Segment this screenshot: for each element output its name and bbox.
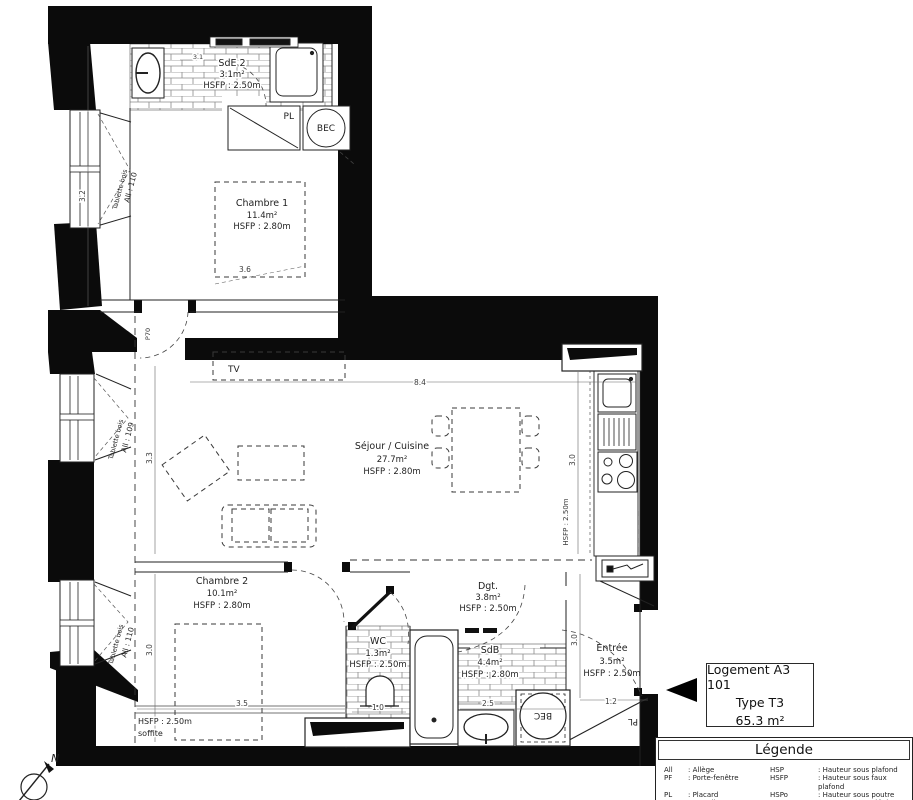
svg-text:1.3m²: 1.3m² xyxy=(365,649,390,659)
dim-wc-width: 1.0 xyxy=(372,703,384,712)
dim-chambre2-height: 3.0 xyxy=(145,644,154,656)
tv-label: TV xyxy=(227,365,240,375)
legend-title: Légende xyxy=(658,740,910,760)
svg-text:Séjour / Cuisine: Séjour / Cuisine xyxy=(355,441,429,452)
legend-abbr: HSP xyxy=(770,766,818,774)
svg-text:Dgt.: Dgt. xyxy=(478,581,498,592)
svg-text:3.1m²: 3.1m² xyxy=(219,70,244,80)
legend-row: PL : Placard HSPo : Hauteur sous poutre xyxy=(664,791,912,799)
radiator-chambre2 xyxy=(305,718,410,747)
chair xyxy=(432,416,449,436)
svg-text:Chambre 2: Chambre 2 xyxy=(196,576,248,587)
dim-chambre1-height: 3.2 xyxy=(78,190,87,202)
room-label-sejour: Séjour / Cuisine 27.7m² HSFP : 2.80m xyxy=(355,441,429,477)
svg-text:Entrée: Entrée xyxy=(596,643,627,654)
svg-text:11.4m²: 11.4m² xyxy=(247,211,278,221)
door-p70-label: P70 xyxy=(144,328,152,340)
water-heater-lower-label: BEC xyxy=(534,710,552,720)
legend-abbr: HSFP xyxy=(770,774,818,791)
svg-text:HSFP : 2.80m: HSFP : 2.80m xyxy=(233,222,290,232)
svg-text:SdE 2: SdE 2 xyxy=(218,58,245,69)
chair xyxy=(522,448,539,468)
dim-entree-width: 1.2 xyxy=(605,697,617,706)
dim-sde2-width: 3.1 xyxy=(193,53,203,61)
sofa-cushion xyxy=(232,509,269,542)
floor-plan-page: Tablette bois All : 110 Tablette bois Al… xyxy=(0,0,913,800)
dim-chambre1-width: 3.6 xyxy=(239,265,251,274)
soffit-note: HSFP : 2.50m soffite xyxy=(138,717,192,738)
room-label-entree: Entrée 3.5m² HSFP : 2.50m xyxy=(583,643,640,679)
dim-entree-height: 3.0 xyxy=(570,634,579,646)
svg-text:HSFP : 2.50m: HSFP : 2.50m xyxy=(349,660,406,670)
chair xyxy=(432,448,449,468)
soffit-note-line2: soffite xyxy=(138,729,163,738)
legend-abbr: HSPo xyxy=(770,791,818,799)
svg-text:3.8m²: 3.8m² xyxy=(475,593,500,603)
legend-label: : Allège xyxy=(688,766,770,774)
legend-box: Légende All : Allège HSP : Hauteur sous … xyxy=(655,737,913,800)
sofa-cushion xyxy=(271,509,308,542)
svg-text:HSFP : 2.80m: HSFP : 2.80m xyxy=(461,670,518,680)
unit-pointer-arrow-icon xyxy=(666,678,697,702)
dim-sejour-width: 8.4 xyxy=(414,378,426,387)
north-label: N xyxy=(51,752,59,765)
svg-text:HSFP : 2.80m: HSFP : 2.80m xyxy=(193,601,250,611)
svg-text:4.4m²: 4.4m² xyxy=(477,658,502,668)
armchair xyxy=(162,435,230,501)
legend-label: : Hauteur sous faux plafond xyxy=(818,774,912,791)
svg-text:HSFP : 2.50m: HSFP : 2.50m xyxy=(459,604,516,614)
legend-label: : Hauteur sous poutre xyxy=(818,791,912,799)
dim-chambre2-width: 3.5 xyxy=(236,699,248,708)
room-label-chambre2: Chambre 2 10.1m² HSFP : 2.80m xyxy=(193,576,250,611)
legend-abbr: All xyxy=(664,766,688,774)
legend-label: : Placard xyxy=(688,791,770,799)
svg-text:HSFP : 2.50m: HSFP : 2.50m xyxy=(583,669,640,679)
svg-text:WC: WC xyxy=(370,636,386,647)
dining-table xyxy=(452,408,520,492)
coffee-table xyxy=(238,446,304,480)
room-label-dgt: Dgt. 3.8m² HSFP : 2.50m xyxy=(459,581,516,614)
dim-sdb-width: 2.5 xyxy=(482,699,494,708)
svg-text:3.5m²: 3.5m² xyxy=(599,657,624,667)
kitchen-ceiling-label: HSFP : 2.50m xyxy=(562,498,570,545)
water-heater-upper-label: BEC xyxy=(317,124,335,134)
window-2 xyxy=(60,374,128,462)
window-labels: Tablette bois All : 110 Tablette bois Al… xyxy=(107,168,139,666)
radiator-sejour xyxy=(562,344,642,371)
north-compass: N xyxy=(19,752,59,800)
legend-row: All : Allège HSP : Hauteur sous plafond xyxy=(664,766,912,774)
legend-row: PF : Porte-fenêtre HSFP : Hauteur sous f… xyxy=(664,774,912,791)
pl-entree-label: PL xyxy=(628,716,638,726)
unit-id: Logement A3 101 xyxy=(707,662,813,693)
dim-sejour-height: 3.3 xyxy=(145,452,154,464)
kitchen-counter xyxy=(594,368,638,556)
legend-abbr: PL xyxy=(664,791,688,799)
unit-area: 65.3 m² xyxy=(736,713,785,729)
svg-text:10.1m²: 10.1m² xyxy=(207,589,238,599)
legend-body: All : Allège HSP : Hauteur sous plafond … xyxy=(656,762,912,800)
legend-abbr: PF xyxy=(664,774,688,791)
room-label-chambre1: Chambre 1 11.4m² HSFP : 2.80m xyxy=(233,198,290,232)
svg-text:Chambre 1: Chambre 1 xyxy=(236,198,288,209)
svg-text:HSFP : 2.80m: HSFP : 2.80m xyxy=(363,467,420,477)
svg-text:SdB: SdB xyxy=(481,645,500,656)
dim-kitchen-height: 3.0 xyxy=(568,454,577,466)
legend-label: : Hauteur sous plafond xyxy=(818,766,912,774)
title-block: Logement A3 101 Type T3 65.3 m² xyxy=(706,663,814,727)
legend-label: : Porte-fenêtre xyxy=(688,774,770,791)
unit-type: Type T3 xyxy=(736,695,784,711)
svg-text:27.7m²: 27.7m² xyxy=(377,455,408,465)
svg-text:HSFP : 2.50m: HSFP : 2.50m xyxy=(203,81,260,91)
pl-closet-label: PL xyxy=(284,112,294,122)
chair xyxy=(522,416,539,436)
soffit-note-line1: HSFP : 2.50m xyxy=(138,717,192,726)
